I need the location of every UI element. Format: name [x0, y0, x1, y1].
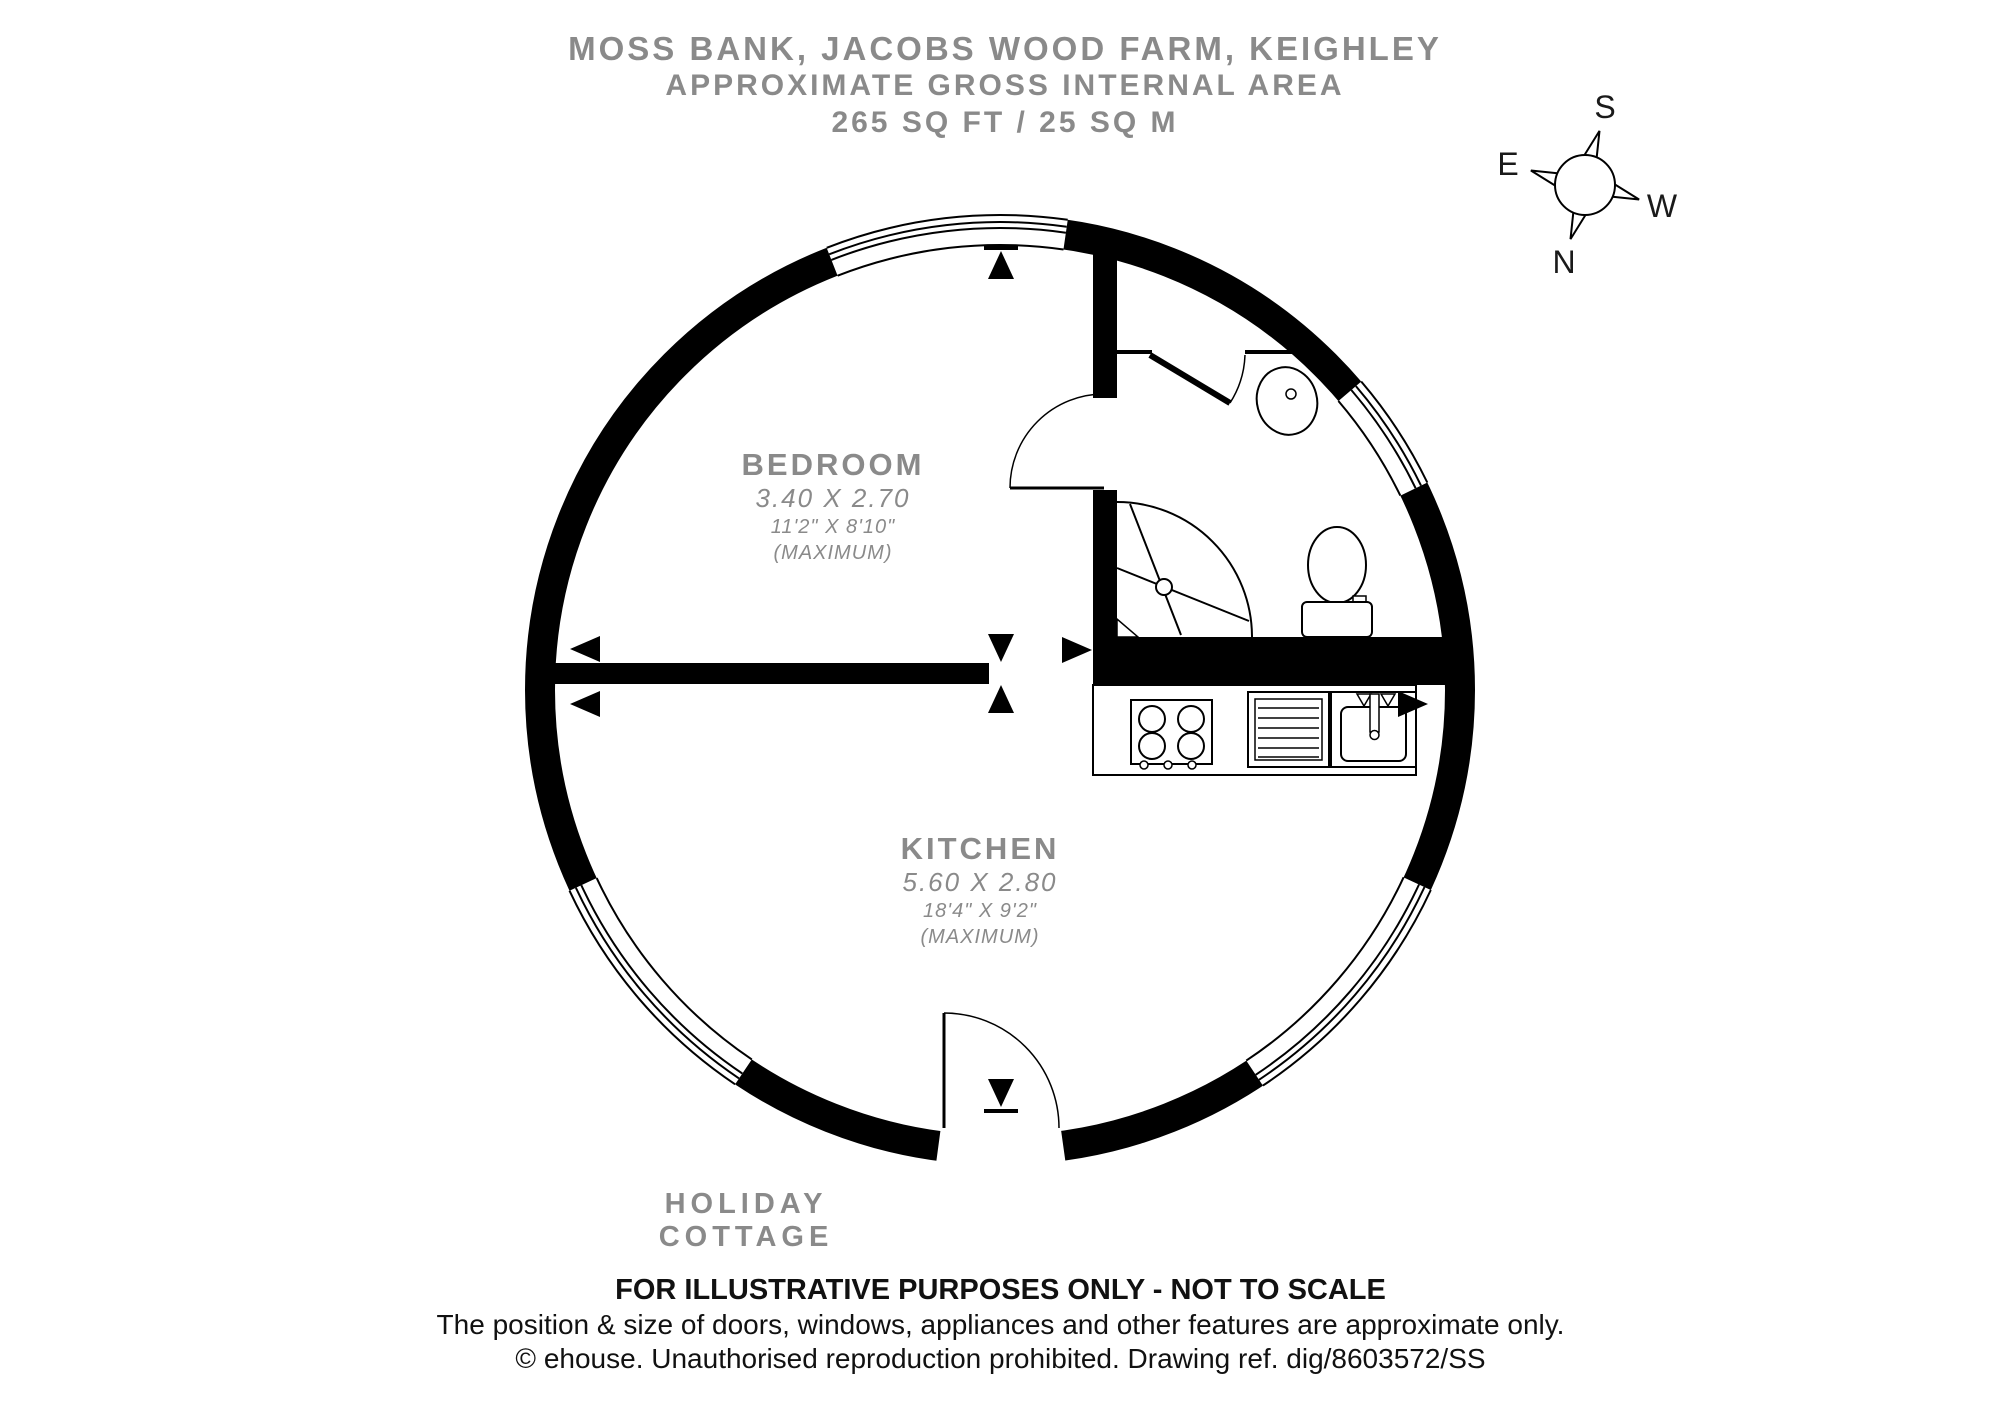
bedroom-width-arrow-right: [1062, 637, 1092, 663]
bedroom-imperial-dims: 11'2" X 8'10": [683, 514, 983, 540]
floorplan-drawing: S E W N: [0, 0, 2001, 1416]
kitchen-metric-dims: 5.60 X 2.80: [830, 866, 1130, 898]
kitchen-max-note: (MAXIMUM): [830, 924, 1130, 950]
bedroom-width-arrow-left: [570, 636, 600, 662]
compass-north-arrow: [1571, 213, 1586, 240]
hob: [1131, 700, 1212, 769]
compass-west-arrow: [1613, 185, 1640, 200]
bathroom-partition-left: [1117, 350, 1152, 354]
bedroom-max-note: (MAXIMUM): [683, 540, 983, 566]
compass-west-label: W: [1647, 188, 1678, 224]
disclaimer-block: FOR ILLUSTRATIVE PURPOSES ONLY - NOT TO …: [0, 1272, 2001, 1376]
bedroom-depth-arrow-bottom: [988, 634, 1014, 662]
bedroom-metric-dims: 3.40 X 2.70: [683, 482, 983, 514]
floorplan-page: S E W N MOSS BANK, JACOBS WOOD FARM, KEI…: [0, 0, 2001, 1416]
shower: [1117, 502, 1252, 637]
bathroom-kitchen-wall: [1093, 637, 1453, 685]
bathroom-partition-right: [1245, 350, 1302, 354]
bathroom-wall-upper: [1093, 252, 1117, 398]
disclaimer-line2: The position & size of doors, windows, a…: [0, 1308, 2001, 1342]
compass-circle: [1555, 155, 1615, 215]
bedroom-depth-arrow-top: [988, 251, 1014, 279]
compass-east-label: E: [1497, 146, 1518, 182]
copyright-line: © ehouse. Unauthorised reproduction proh…: [0, 1342, 2001, 1376]
area-value: 265 SQ FT / 25 SQ M: [0, 104, 2001, 142]
bedroom-label: BEDROOM 3.40 X 2.70 11'2" X 8'10" (MAXIM…: [683, 448, 983, 566]
area-subtitle: APPROXIMATE GROSS INTERNAL AREA: [0, 68, 2001, 104]
property-title: MOSS BANK, JACOBS WOOD FARM, KEIGHLEY: [0, 30, 2001, 68]
plan-title: HOLIDAY COTTAGE: [596, 1188, 896, 1254]
disclaimer-line1: FOR ILLUSTRATIVE PURPOSES ONLY - NOT TO …: [0, 1272, 2001, 1308]
compass-north-label: N: [1552, 244, 1575, 280]
kitchen-label: KITCHEN 5.60 X 2.80 18'4" X 9'2" (MAXIMU…: [830, 832, 1130, 950]
toilet: [1302, 527, 1372, 637]
bedroom-bathroom-door: [1010, 394, 1104, 488]
bedroom-kitchen-wall: [548, 663, 989, 684]
bathroom-door: [1150, 355, 1245, 403]
kitchen-depth-tick-bottom: [984, 1109, 1018, 1113]
kitchen-depth-arrow-top: [988, 685, 1014, 713]
kitchen-imperial-dims: 18'4" X 9'2": [830, 898, 1130, 924]
bedroom-name: BEDROOM: [683, 448, 983, 482]
bedroom-depth-tick-top: [984, 246, 1018, 250]
compass-east-arrow: [1531, 171, 1558, 186]
kitchen-depth-arrow-bottom: [988, 1079, 1014, 1107]
title-block: MOSS BANK, JACOBS WOOD FARM, KEIGHLEY AP…: [0, 30, 2001, 142]
kitchen-width-arrow-left: [570, 691, 600, 717]
kitchen-name: KITCHEN: [830, 832, 1130, 866]
drainer: [1248, 692, 1329, 767]
